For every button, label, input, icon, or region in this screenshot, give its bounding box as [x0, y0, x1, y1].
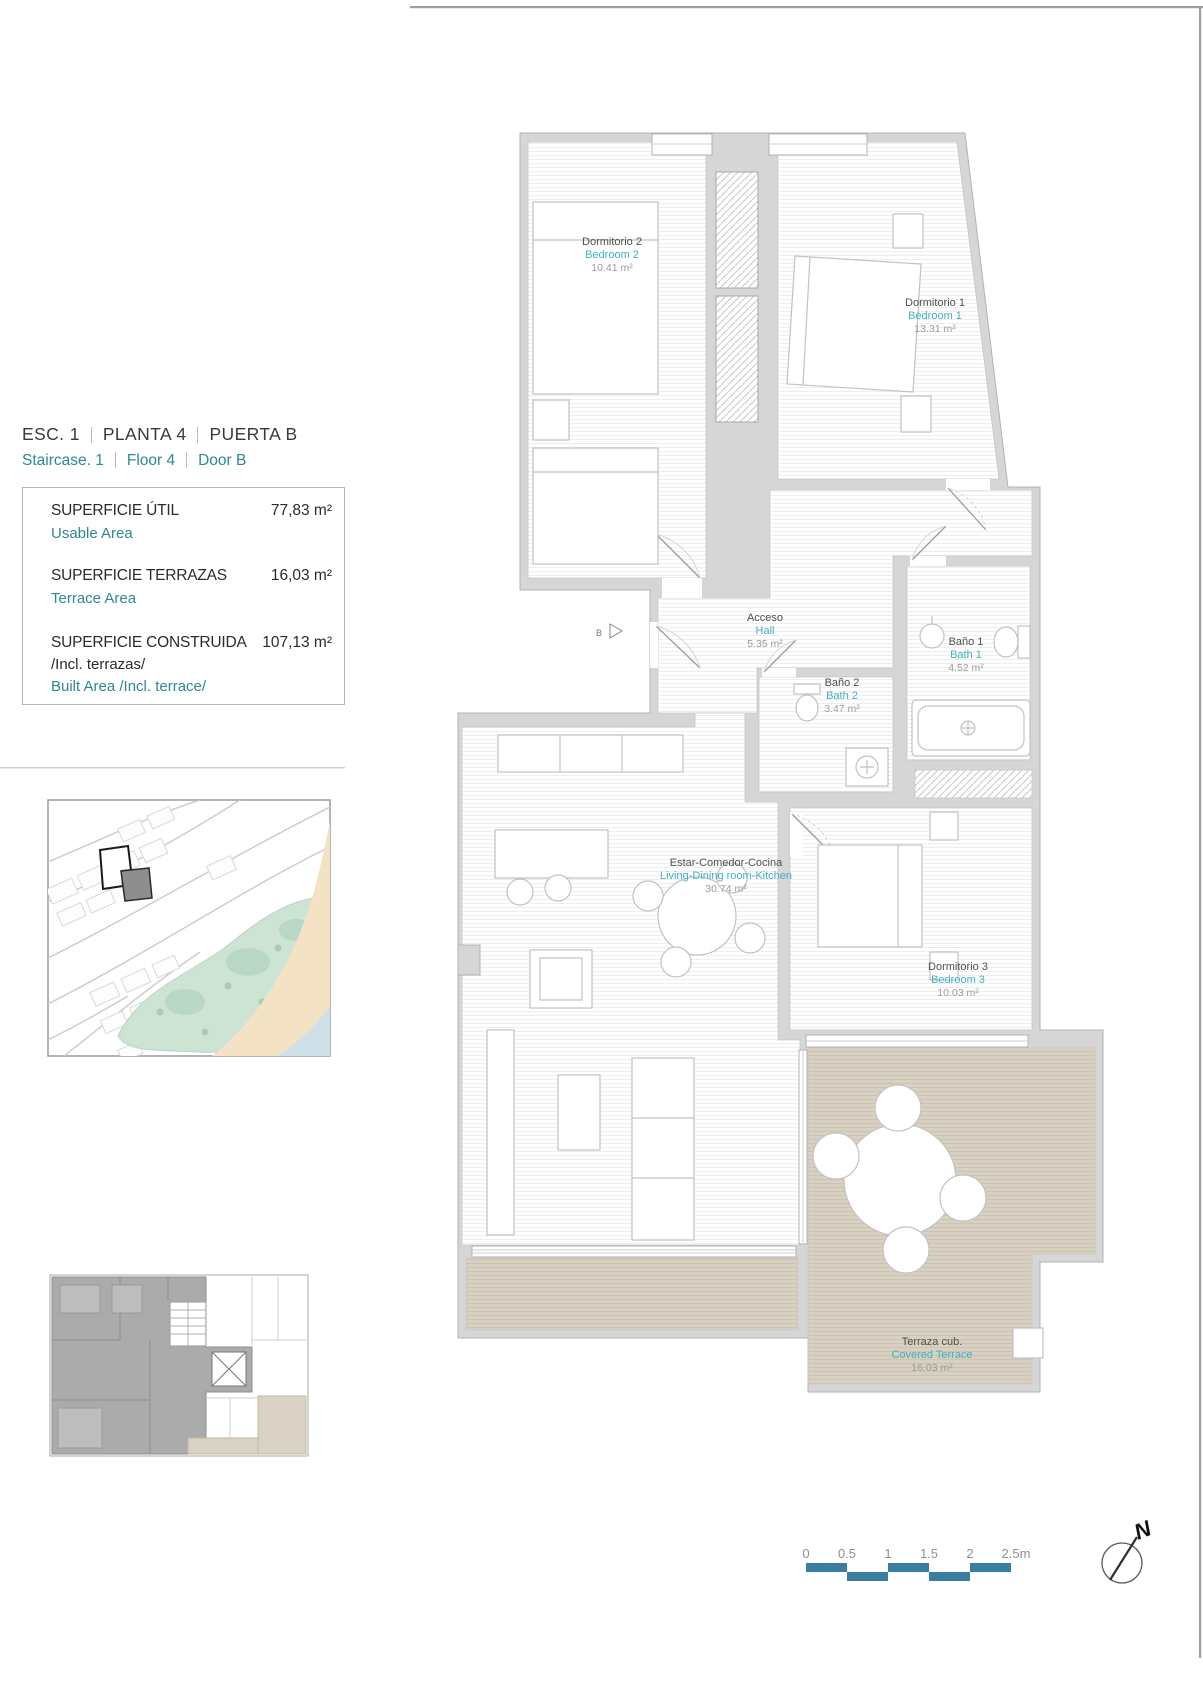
scale-tick-0: 0 [802, 1546, 809, 1561]
bedroom2-name-en: Bedroom 2 [585, 249, 639, 261]
nightstand [533, 400, 569, 440]
chair [883, 1227, 929, 1273]
bath2-name-en: Bath 2 [826, 690, 858, 702]
coffee-table [558, 1075, 600, 1150]
tv-sideboard [487, 1030, 514, 1235]
scale-bar-segments [806, 1563, 1011, 1581]
scale-tick-15: 1.5 [920, 1546, 938, 1561]
bedroom1-name-es: Dormitorio 1 [905, 297, 965, 309]
terrace-table [844, 1124, 956, 1236]
label-bath2: Baño 2 Bath 2 3.47 m² [824, 677, 860, 715]
chair [813, 1133, 859, 1179]
bath1-name-es: Baño 1 [949, 636, 984, 648]
divider-line [0, 767, 345, 769]
closet-corridor-floor [915, 770, 1032, 798]
living-name-es: Estar-Comedor-Cocina [670, 857, 783, 869]
mini-terrace [258, 1396, 306, 1454]
bedroom3-area: 10.03 m² [937, 987, 979, 999]
mini-elevator [212, 1352, 246, 1386]
bedroom2-name-es: Dormitorio 2 [582, 236, 642, 248]
bedroom3-name-en: Bedroom 3 [931, 974, 985, 986]
bedroom3-name-es: Dormitorio 3 [928, 961, 988, 973]
hall-name-en: Hall [756, 625, 775, 637]
nightstand [901, 396, 931, 432]
wall-pillar [458, 945, 480, 975]
sofa [632, 1058, 694, 1240]
terrace-name-en: Covered Terrace [891, 1349, 972, 1361]
bath1-area: 4.52 m² [948, 662, 984, 674]
chair [661, 947, 691, 977]
kitchen-island [495, 830, 608, 878]
armchair [530, 950, 592, 1008]
north-compass-icon: N [1102, 1515, 1156, 1583]
planter [1013, 1328, 1043, 1358]
chair [940, 1175, 986, 1221]
nightstand [930, 812, 958, 840]
bedroom1-name-en: Bedroom 1 [908, 310, 962, 322]
bath1-name-en: Bath 1 [950, 649, 982, 661]
living-name-en: Living-Dining room-Kitchen [660, 870, 792, 882]
scale-tick-25: 2.5m [1002, 1546, 1031, 1561]
hall-area: 5.35 m² [747, 638, 783, 650]
scale-tick-2: 2 [966, 1546, 973, 1561]
entry-door-label: B [596, 628, 602, 638]
nightstand [893, 214, 923, 248]
scale-tick-1: 1 [884, 1546, 891, 1561]
stool [545, 875, 571, 901]
mini-staircase [170, 1302, 206, 1346]
bath2-name-es: Baño 2 [825, 677, 860, 689]
terrace-name-es: Terraza cub. [902, 1336, 963, 1348]
scale-bar: 0 0.5 1 1.5 2 2.5m [802, 1546, 1030, 1581]
main-floorplan: B Dormitorio 2 Bedroom 2 10.41 m² Dormit… [458, 133, 1103, 1392]
bedroom2-area: 10.41 m² [591, 262, 633, 274]
balcony-floor [466, 1258, 798, 1330]
entry-marker: B [596, 624, 622, 638]
living-area: 30.74 m² [705, 883, 747, 895]
chair [735, 923, 765, 953]
terrace-area: 16.03 m² [911, 1362, 953, 1374]
scale-tick-05: 0.5 [838, 1546, 856, 1561]
site-location-map [32, 792, 332, 1064]
bedroom1-area: 13.31 m² [914, 323, 956, 335]
label-bath1: Baño 1 Bath 1 4.52 m² [948, 636, 984, 674]
entry-arrow-icon [610, 624, 622, 638]
drawing-canvas: B Dormitorio 2 Bedroom 2 10.41 m² Dormit… [0, 0, 1203, 1704]
chair [875, 1085, 921, 1131]
hall-name-es: Acceso [747, 612, 783, 624]
floorplan-sheet: { "header": { "line_es": ["ESC. 1", "PLA… [0, 0, 1203, 1704]
chair [633, 881, 663, 911]
bath2-area: 3.47 m² [824, 703, 860, 715]
wardrobes [716, 172, 758, 422]
stool [507, 879, 533, 905]
mini-floorplan [50, 1275, 308, 1456]
